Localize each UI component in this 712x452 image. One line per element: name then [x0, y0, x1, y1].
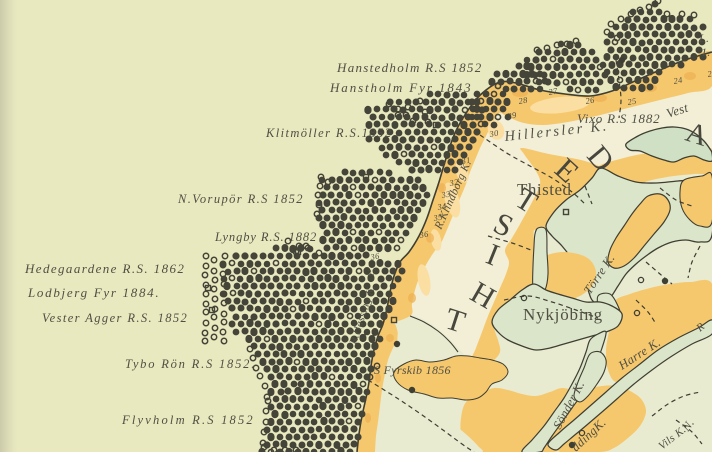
svg-text:1.: 1. [701, 45, 711, 59]
svg-text:33: 33 [440, 189, 452, 201]
svg-text:Lodbjerg Fyr 1884.: Lodbjerg Fyr 1884. [27, 285, 160, 300]
svg-text:Vester Agger R.S. 1852: Vester Agger R.S. 1852 [42, 311, 188, 325]
svg-text:Hedegaardene R.S. 1862: Hedegaardene R.S. 1862 [24, 261, 185, 276]
svg-text:25: 25 [627, 96, 638, 107]
svg-text:Hanstedholm R.S 1852: Hanstedholm R.S 1852 [336, 60, 483, 75]
svg-text:S Fyrskib 1856: S Fyrskib 1856 [374, 363, 451, 377]
svg-text:Flyvholm R.S 1852: Flyvholm R.S 1852 [121, 413, 255, 427]
svg-text:31: 31 [460, 155, 472, 167]
svg-text:Klitmöller R.S.1852: Klitmöller R.S.1852 [265, 126, 392, 140]
svg-text:Nykjöbing: Nykjöbing [523, 305, 603, 324]
svg-text:L.: L. [698, 31, 709, 45]
svg-text:Tybo Rön R.S 1852.: Tybo Rön R.S 1852. [125, 357, 256, 371]
svg-text:35: 35 [432, 212, 444, 224]
svg-text:2: 2 [707, 68, 712, 79]
svg-text:Lyngby R.S. 1882: Lyngby R.S. 1882 [214, 230, 317, 244]
svg-text:Hanstholm Fyr 1843: Hanstholm Fyr 1843 [329, 80, 473, 95]
svg-text:N.Vorupör R.S 1852: N.Vorupör R.S 1852 [177, 192, 304, 206]
